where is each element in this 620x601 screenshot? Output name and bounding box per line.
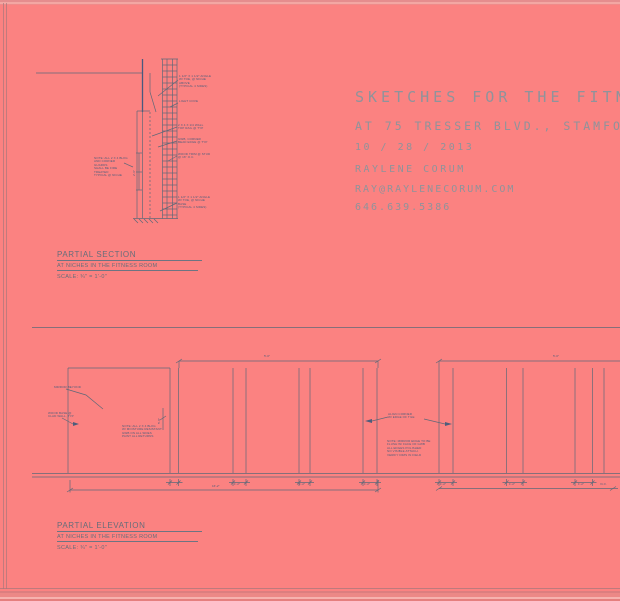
partial-elevation-drawing <box>32 328 620 493</box>
mullion-dim: 1'-2" <box>364 483 370 486</box>
mullion-dim: 1'-2" <box>234 483 240 486</box>
author-name: RAYLENE CORUM <box>355 164 466 175</box>
mullion-dim: 1'-2" <box>440 483 446 486</box>
elevation-note-center: NOTE: ALL 2 X 4 BLKG W/ MOISTURE RESISTA… <box>122 425 162 439</box>
section-callout-stud: WOOD TRIM @ STUD @ 16" O.C. <box>178 153 210 160</box>
sheet-date: 10 / 28 / 2013 <box>355 142 474 153</box>
author-email: RAY@RAYLENECORUM.COM <box>355 184 515 195</box>
elevation-note-opening: ALIGN CORNER W/ EDGE OF TILE <box>388 413 415 420</box>
section-callout-angle-top: 1 1/2" X 1 1/2" ANGLE W/ TOE, @ NICHE AB… <box>179 75 211 89</box>
partial-section-drawing <box>36 59 178 223</box>
section-title-block: PARTIAL SECTION AT NICHES IN THE FITNESS… <box>57 250 202 280</box>
elevation-subtitle: AT NICHES IN THE FITNESS ROOM <box>57 534 198 542</box>
elevation-dim-niche-height: 5'-8" <box>158 418 161 424</box>
elevation-dim-top-left: 5'-0" <box>264 355 270 358</box>
section-scale: SCALE: ¾" = 1'-0" <box>57 274 202 280</box>
section-callout-angle-base: 1 1/2" X 1 1/2" ANGLE W/ TOE, @ NICHE BA… <box>178 196 210 210</box>
mullion-dim: 1'-2" <box>509 483 515 486</box>
drawing-sheet: SKETCHES FOR THE FITNE AT 75 TRESSER BLV… <box>0 0 620 601</box>
elevation-note-base: WOOD BASE @ CLAD WALL, TYP <box>48 412 74 419</box>
section-callout-cove: LIGHT COVE <box>179 100 198 103</box>
sheet-address: AT 75 TRESSER BLVD., STAMFORD, <box>355 119 620 133</box>
elevation-note-mirror-edge: NOTE: MIRROR EDGE TO BE FLUSH W/ FACE OF… <box>387 440 431 457</box>
section-dim-height: 2'-6" <box>133 170 136 176</box>
elevation-title-block: PARTIAL ELEVATION AT NICHES IN THE FITNE… <box>57 521 202 551</box>
mullion-dim: 1'-2" <box>578 483 584 486</box>
section-title: PARTIAL SECTION <box>57 250 202 261</box>
elevation-dim-bottom-left: 16'-2" <box>212 485 220 488</box>
elevation-scale: SCALE: ¾" = 1'-0" <box>57 545 202 551</box>
section-subtitle: AT NICHES IN THE FITNESS ROOM <box>57 263 198 271</box>
author-phone: 646.639.5386 <box>355 202 451 213</box>
section-callout-rail: 2 X 4 X 1/4 WALL TOP RAIL @ TYP <box>178 124 203 131</box>
elevation-dim-bottom-right: V.I.F. <box>600 483 607 486</box>
sheet-title: SKETCHES FOR THE FITNE <box>355 88 620 106</box>
elevation-dim-top-right: 5'-0" <box>553 355 559 358</box>
section-note: NOTE: ALL 2 X 4 BLKG AND CORNER GUARDS S… <box>94 157 128 177</box>
section-callout-gwb: GWB, CORNER BEAD EDGE @ TYP <box>178 138 208 145</box>
mullion-dim: 1'-2" <box>299 483 305 486</box>
elevation-title: PARTIAL ELEVATION <box>57 521 202 532</box>
elevation-note-mirror: MIRROR BEYOND <box>54 386 81 389</box>
